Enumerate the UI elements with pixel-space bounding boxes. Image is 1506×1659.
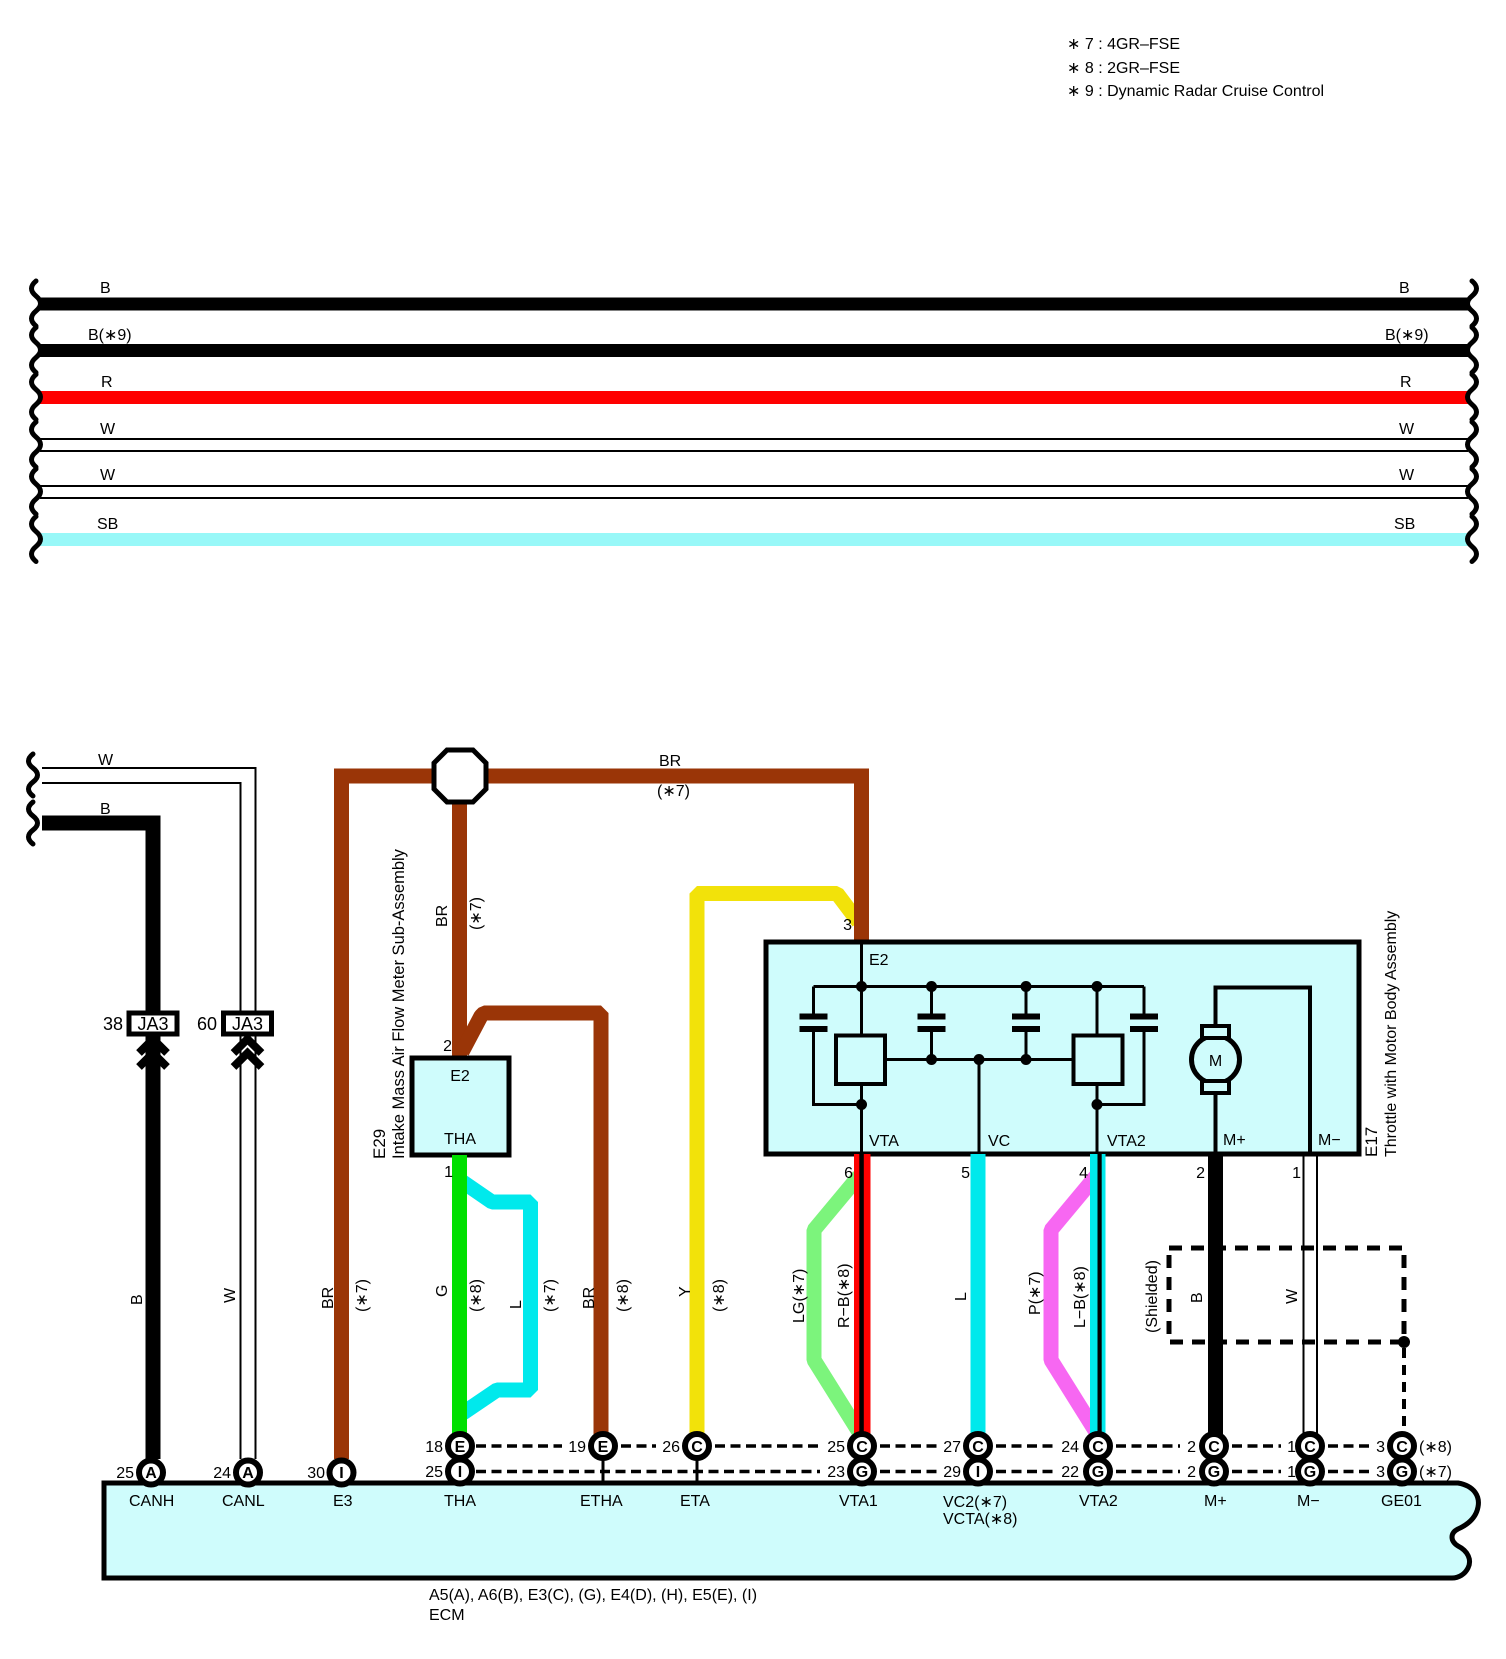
svg-text:3: 3 [843,917,852,934]
svg-text:E17: E17 [1362,1127,1381,1157]
svg-text:THA: THA [444,1493,476,1510]
svg-text:A: A [145,1465,157,1482]
svg-text:(∗8): (∗8) [711,1279,728,1312]
svg-text:C: C [1092,1439,1104,1456]
svg-text:26: 26 [662,1439,680,1456]
svg-text:(∗8): (∗8) [468,1279,485,1312]
svg-text:24: 24 [1061,1439,1079,1456]
svg-text:R: R [1400,374,1412,391]
svg-text:∗ 8 : 2GR–FSE: ∗ 8 : 2GR–FSE [1067,60,1180,77]
svg-text:W: W [222,1287,239,1303]
svg-text:E29: E29 [370,1129,389,1159]
svg-text:W: W [100,421,116,438]
svg-text:∗ 9 : Dynamic Radar Cruise Con: ∗ 9 : Dynamic Radar Cruise Control [1067,83,1324,100]
svg-text:E2: E2 [450,1068,470,1085]
svg-text:W: W [1399,467,1415,484]
svg-text:JA3: JA3 [232,1014,263,1034]
svg-text:(∗7): (∗7) [657,783,690,800]
svg-text:(∗7): (∗7) [354,1279,371,1312]
svg-text:G: G [1208,1464,1220,1481]
svg-text:L: L [953,1292,970,1301]
svg-text:2: 2 [1196,1165,1205,1182]
svg-text:VTA: VTA [869,1133,899,1150]
svg-text:(∗7): (∗7) [468,897,485,930]
svg-text:LG(∗7): LG(∗7) [791,1269,808,1323]
svg-text:P(∗7): P(∗7) [1027,1271,1044,1315]
svg-text:2: 2 [443,1038,452,1055]
svg-text:ETHA: ETHA [580,1493,623,1510]
svg-text:19: 19 [568,1439,586,1456]
svg-text:I: I [339,1465,343,1482]
svg-text:BR: BR [581,1287,598,1309]
svg-text:Intake Mass Air Flow Meter Sub: Intake Mass Air Flow Meter Sub-Assembly [390,848,408,1159]
svg-text:W: W [98,752,114,769]
svg-text:Throttle with Motor Body Assem: Throttle with Motor Body Assembly [1383,911,1400,1157]
svg-text:BR: BR [320,1287,337,1309]
svg-text:4: 4 [1079,1165,1088,1182]
svg-text:VC: VC [988,1133,1010,1150]
svg-text:C: C [856,1439,868,1456]
svg-text:B: B [1399,280,1410,297]
svg-text:VTA2: VTA2 [1107,1133,1146,1150]
svg-text:2: 2 [1187,1464,1196,1481]
svg-text:C: C [1208,1439,1220,1456]
svg-text:THA: THA [444,1131,476,1148]
svg-text:B(∗9): B(∗9) [1385,327,1429,344]
svg-text:M+: M+ [1223,1132,1246,1149]
svg-text:JA3: JA3 [137,1014,168,1034]
svg-text:E: E [598,1439,609,1456]
svg-text:C: C [972,1439,984,1456]
svg-text:Y: Y [677,1286,694,1297]
svg-text:W: W [100,467,116,484]
svg-text:SB: SB [97,516,118,533]
svg-text:VC2(∗7): VC2(∗7) [943,1494,1007,1511]
svg-text:VTA1: VTA1 [839,1493,878,1510]
svg-text:1: 1 [1287,1464,1296,1481]
svg-text:G: G [1304,1464,1316,1481]
svg-text:A: A [242,1465,254,1482]
svg-text:VTA2: VTA2 [1079,1493,1118,1510]
svg-text:5: 5 [961,1165,970,1182]
svg-text:(Shielded): (Shielded) [1144,1260,1161,1333]
svg-text:R: R [101,374,113,391]
svg-text:(∗8): (∗8) [1419,1439,1452,1456]
svg-text:27: 27 [943,1439,961,1456]
svg-text:B(∗9): B(∗9) [88,327,132,344]
svg-text:L−B(∗8): L−B(∗8) [1072,1266,1089,1328]
svg-text:BR: BR [659,753,681,770]
svg-text:C: C [691,1439,703,1456]
svg-text:M−: M− [1297,1493,1320,1510]
svg-text:A5(A), A6(B), E3(C), (G), E4(D: A5(A), A6(B), E3(C), (G), E4(D), (H), E5… [429,1587,757,1604]
svg-text:GE01: GE01 [1381,1493,1422,1510]
svg-text:CANL: CANL [222,1493,265,1510]
svg-text:VCTA(∗8): VCTA(∗8) [943,1511,1017,1528]
svg-text:L: L [508,1300,525,1309]
svg-text:2: 2 [1187,1439,1196,1456]
svg-text:22: 22 [1061,1464,1079,1481]
svg-text:6: 6 [844,1165,853,1182]
svg-text:23: 23 [827,1464,845,1481]
svg-text:3: 3 [1376,1464,1385,1481]
svg-text:B: B [100,801,111,818]
svg-text:38: 38 [103,1014,123,1034]
svg-text:W: W [1399,421,1415,438]
svg-text:1: 1 [1287,1439,1296,1456]
svg-text:C: C [1396,1439,1408,1456]
svg-text:B: B [100,280,111,297]
svg-text:ECM: ECM [429,1607,465,1624]
svg-text:R−B(∗8): R−B(∗8) [836,1263,853,1328]
svg-text:E: E [455,1439,466,1456]
svg-text:29: 29 [943,1464,961,1481]
svg-text:G: G [434,1285,451,1297]
svg-text:60: 60 [197,1014,217,1034]
svg-text:G: G [1092,1464,1104,1481]
svg-text:G: G [856,1464,868,1481]
svg-text:C: C [1304,1439,1316,1456]
svg-text:1: 1 [1292,1165,1301,1182]
svg-text:1: 1 [444,1164,453,1181]
svg-text:M+: M+ [1204,1493,1227,1510]
svg-text:24: 24 [213,1465,231,1482]
svg-text:25: 25 [425,1464,443,1481]
svg-text:I: I [458,1464,462,1481]
svg-text:B: B [1189,1292,1206,1303]
svg-text:M: M [1209,1053,1222,1070]
svg-text:30: 30 [307,1465,325,1482]
svg-text:M−: M− [1318,1132,1341,1149]
svg-text:W: W [1284,1288,1301,1304]
svg-text:18: 18 [425,1439,443,1456]
svg-text:25: 25 [827,1439,845,1456]
svg-text:(∗7): (∗7) [1419,1464,1452,1481]
svg-text:(∗7): (∗7) [542,1279,559,1312]
svg-text:E2: E2 [869,952,889,969]
svg-text:∗ 7 : 4GR–FSE: ∗ 7 : 4GR–FSE [1067,36,1180,53]
svg-text:G: G [1396,1464,1408,1481]
svg-text:25: 25 [116,1465,134,1482]
svg-text:(∗8): (∗8) [615,1279,632,1312]
svg-text:SB: SB [1394,516,1415,533]
svg-text:I: I [976,1464,980,1481]
svg-text:BR: BR [434,905,451,927]
svg-text:B: B [129,1294,146,1305]
svg-text:E3: E3 [333,1493,353,1510]
svg-text:3: 3 [1376,1439,1385,1456]
svg-text:ETA: ETA [680,1493,710,1510]
svg-text:CANH: CANH [129,1493,174,1510]
